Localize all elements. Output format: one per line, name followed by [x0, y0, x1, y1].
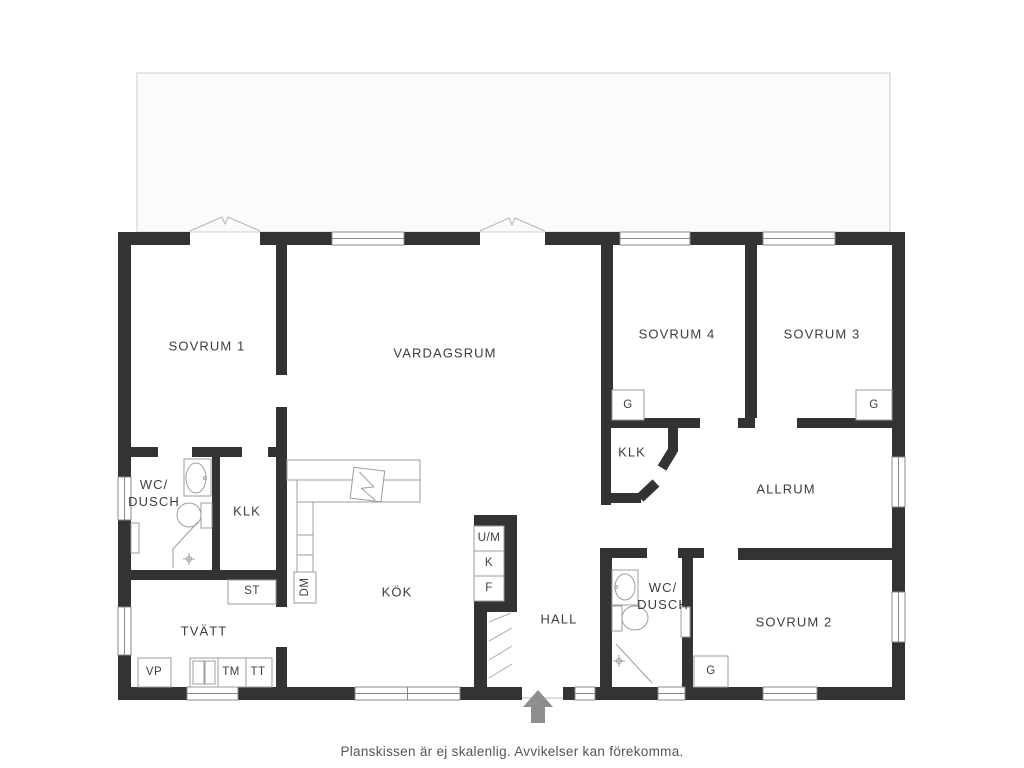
appliance-label-dm: DM: [299, 578, 311, 597]
shower-drain-icon: [613, 655, 625, 667]
room-label-kok: KÖK: [382, 585, 413, 600]
room-label-sovrum-2: SOVRUM 2: [756, 615, 833, 630]
appliance-label-vp: VP: [146, 666, 162, 678]
appliance-label-k: K: [485, 557, 493, 569]
closet-label-g-sovrum4: G: [623, 399, 632, 411]
appliance-label-tm: TM: [222, 666, 240, 678]
hall-wardrobe-hatch: [489, 613, 512, 678]
toilet-icon: [201, 503, 212, 528]
room-label-klk-left: KLK: [233, 504, 261, 519]
closet-label-g-sovrum2: G: [706, 665, 715, 677]
appliance-label-f: F: [485, 582, 493, 594]
entrance-arrow-icon: [523, 690, 553, 723]
room-label-klk-right: KLK: [618, 445, 646, 460]
stove-icon: [350, 467, 385, 502]
windows: [118, 232, 905, 700]
walls: [118, 232, 905, 700]
room-label-sovrum-3: SOVRUM 3: [784, 327, 861, 342]
deck-outline: [137, 73, 890, 232]
wc-line1: WC/: [649, 580, 678, 595]
room-label-hall: HALL: [541, 612, 578, 627]
room-label-wc-dusch-right: WC/ DUSCH: [637, 579, 689, 613]
appliance-label-tt: TT: [250, 666, 265, 678]
wc-line2: DUSCH: [637, 597, 689, 612]
wc-line1: WC/: [140, 477, 169, 492]
room-label-allrum: ALLRUM: [756, 482, 815, 497]
shower-drain-icon: [183, 553, 195, 565]
radiator-icon: [131, 523, 139, 553]
floorplan-page: SOVRUM 1 VARDAGSRUM SOVRUM 4 SOVRUM 3 WC…: [0, 0, 1024, 768]
appliance-label-um: U/M: [478, 532, 501, 544]
closet-label-st: ST: [244, 585, 260, 597]
closet-label-g-sovrum3: G: [869, 399, 878, 411]
room-label-vardagsrum: VARDAGSRUM: [393, 346, 496, 361]
sink-icon: [184, 459, 211, 496]
wc-line2: DUSCH: [128, 494, 180, 509]
toilet-icon: [612, 606, 622, 631]
caption: Planskissen är ej skalenlig. Avvikelser …: [0, 744, 1024, 759]
room-label-sovrum-1: SOVRUM 1: [169, 339, 246, 354]
room-label-wc-dusch-left: WC/ DUSCH: [128, 476, 180, 510]
floorplan-graphic: [0, 0, 1024, 768]
room-label-sovrum-4: SOVRUM 4: [639, 327, 716, 342]
entrance: [522, 690, 563, 723]
room-label-tvatt: TVÄTT: [181, 624, 228, 639]
